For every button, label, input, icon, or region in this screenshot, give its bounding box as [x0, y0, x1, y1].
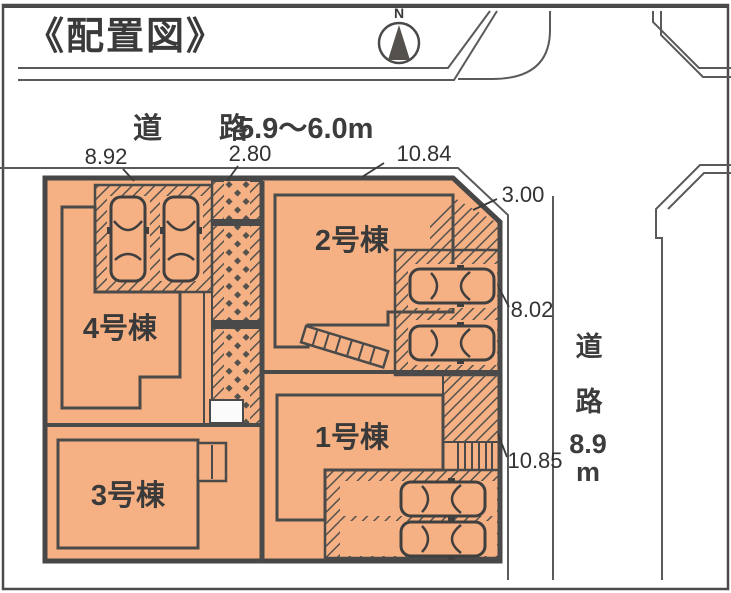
- car-icon: [107, 197, 149, 281]
- site-plan-figure: 《配置図》 N 4号棟: [0, 0, 731, 593]
- car-icon: [410, 265, 494, 307]
- page-title: 《配置図》: [26, 16, 226, 58]
- parking-area-southeast: [325, 470, 500, 560]
- right-road-unit: m: [576, 457, 600, 487]
- parking-area-northwest: [95, 185, 212, 292]
- right-road-label: 道 路 8.9 m: [569, 331, 607, 487]
- dim-frontage-right: 10.84: [396, 141, 451, 166]
- walkway-end-pad: [210, 400, 243, 423]
- building-3-label: 3号棟: [91, 479, 166, 512]
- right-road-name-char2: 路: [576, 386, 604, 417]
- building-4-label: 4号棟: [83, 312, 158, 345]
- dim-right-lower: 10.85: [507, 448, 562, 473]
- right-road-name-char1: 道: [576, 331, 603, 362]
- se-corner-inner: [668, 173, 731, 209]
- intersection-corner-arc: [458, 11, 550, 79]
- car-icon: [410, 322, 494, 364]
- site-plan-page: 《配置図》 N 4号棟: [0, 0, 731, 593]
- walkway-strip: [210, 181, 263, 425]
- compass-icon: N: [379, 5, 419, 63]
- right-road-width: 8.9: [569, 429, 607, 459]
- building-1-label: 1号棟: [315, 421, 390, 454]
- dim-right-upper: 8.02: [511, 297, 554, 322]
- dim-frontage-left: 8.92: [85, 144, 128, 169]
- right-road-far-edge: [656, 165, 731, 580]
- car-icon: [160, 197, 202, 281]
- compass-north-label: N: [394, 5, 404, 21]
- entrance-stairs-building1: [458, 442, 492, 470]
- top-road-width: 5.9～6.0m: [238, 113, 373, 145]
- car-icon: [401, 518, 485, 560]
- car-icon: [401, 478, 485, 520]
- dim-corner-chamfer: 3.00: [502, 182, 545, 207]
- building-2-label: 2号棟: [315, 224, 390, 257]
